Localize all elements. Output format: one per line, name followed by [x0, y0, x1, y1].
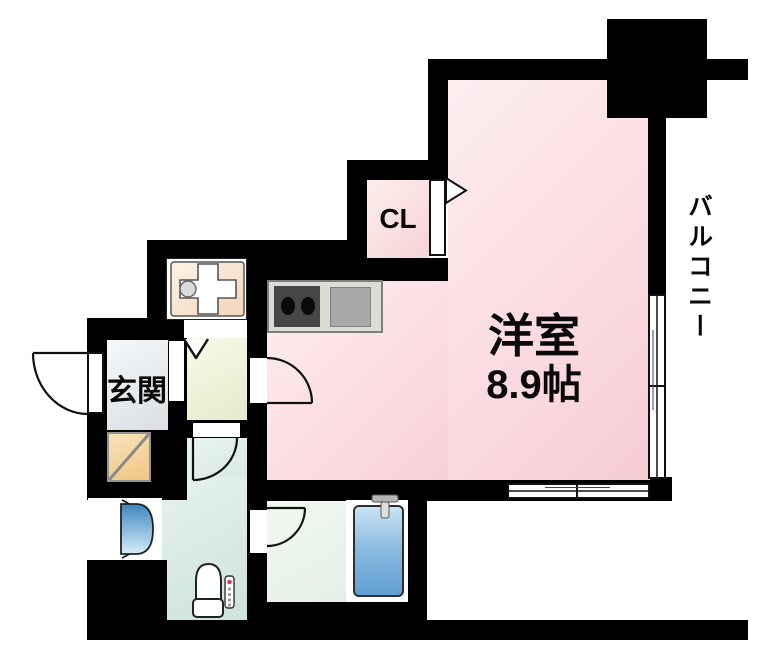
bathtub-icon: [353, 505, 404, 597]
room-entrance-label: 玄関: [103, 366, 171, 410]
closet-door: [429, 179, 446, 256]
kitchen-counter: [267, 280, 383, 333]
room-living-floor: [448, 80, 649, 480]
wall-segment: [267, 258, 448, 281]
kitchen-sink-icon: [330, 287, 371, 327]
stove-icon: [274, 286, 320, 327]
window-right: [648, 294, 666, 479]
wall-segment: [648, 118, 666, 295]
wall-segment: [650, 477, 672, 501]
wall-segment: [247, 240, 267, 620]
room-closet-label: CL: [368, 203, 428, 235]
wall-segment: [87, 318, 168, 340]
entrance-step: [169, 341, 184, 401]
wall-segment: [607, 19, 707, 118]
room-living-name: 洋室: [434, 313, 634, 359]
living-door: [250, 358, 267, 403]
entrance-door: [87, 352, 104, 414]
wall-segment: [166, 320, 184, 338]
opening-hallway: [184, 320, 246, 338]
wall-segment: [707, 59, 748, 80]
opening-toilet: [193, 423, 240, 437]
floor-plan: 洋室 8.9帖 CL 玄関 バルコニー: [0, 0, 766, 660]
vanity-unit: [166, 258, 247, 320]
room-living-label: 洋室 8.9帖: [434, 313, 634, 405]
balcony-label: バルコニー: [684, 193, 712, 343]
room-living-size: 8.9帖: [434, 365, 634, 405]
wall-segment: [87, 620, 748, 640]
room-hallway-floor: [187, 338, 247, 420]
washer-space-icon: [107, 432, 151, 482]
washbasin-alcove: [88, 498, 162, 560]
window-bottom: [507, 483, 650, 499]
bathroom-door: [250, 510, 267, 553]
wall-segment: [428, 59, 608, 80]
